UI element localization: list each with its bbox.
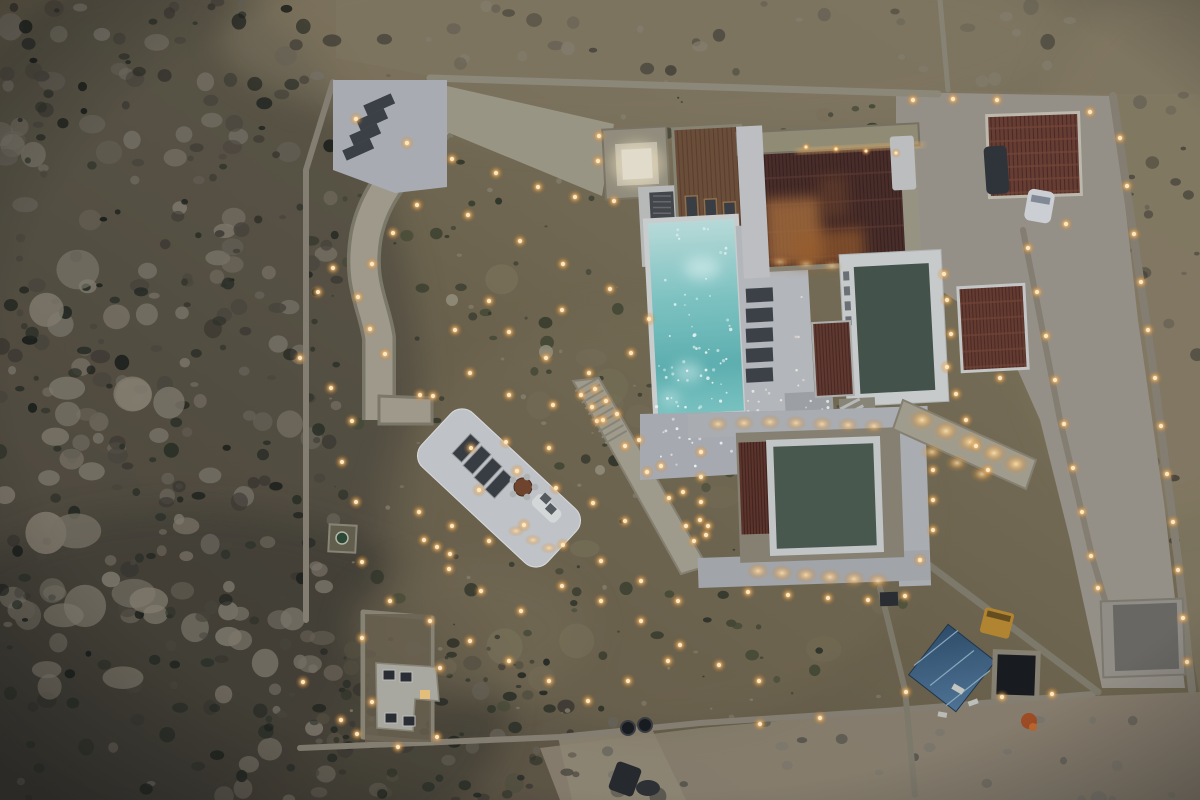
vignette-overlay: [0, 0, 1200, 800]
scene-root: [0, 0, 1200, 800]
aerial-photo-canvas: [0, 0, 1200, 800]
aerial-photo-villa-estate: [0, 0, 1200, 800]
layer-vignette: [0, 0, 1200, 800]
